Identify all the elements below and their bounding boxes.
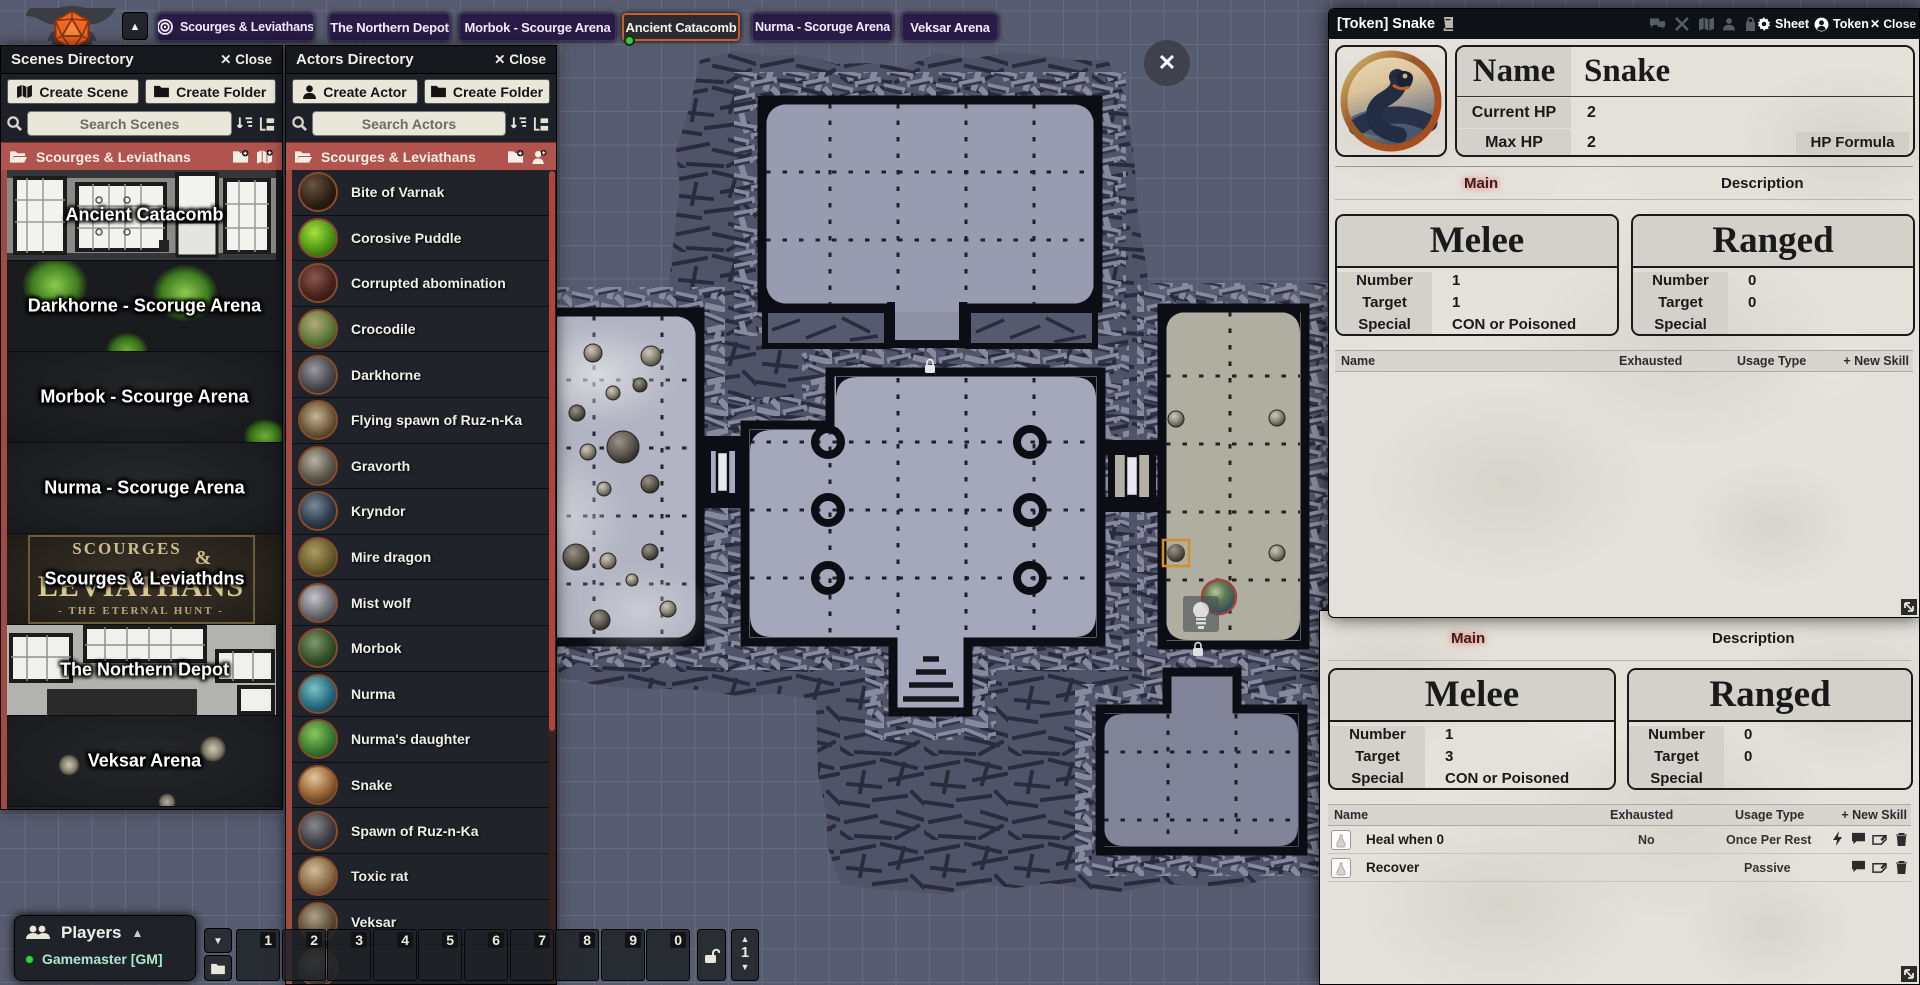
- svg-text:SCOURGES: SCOURGES: [72, 539, 182, 558]
- svg-text:- THE ETERNAL HUNT -: - THE ETERNAL HUNT -: [58, 605, 224, 617]
- svg-text:&: &: [195, 547, 212, 569]
